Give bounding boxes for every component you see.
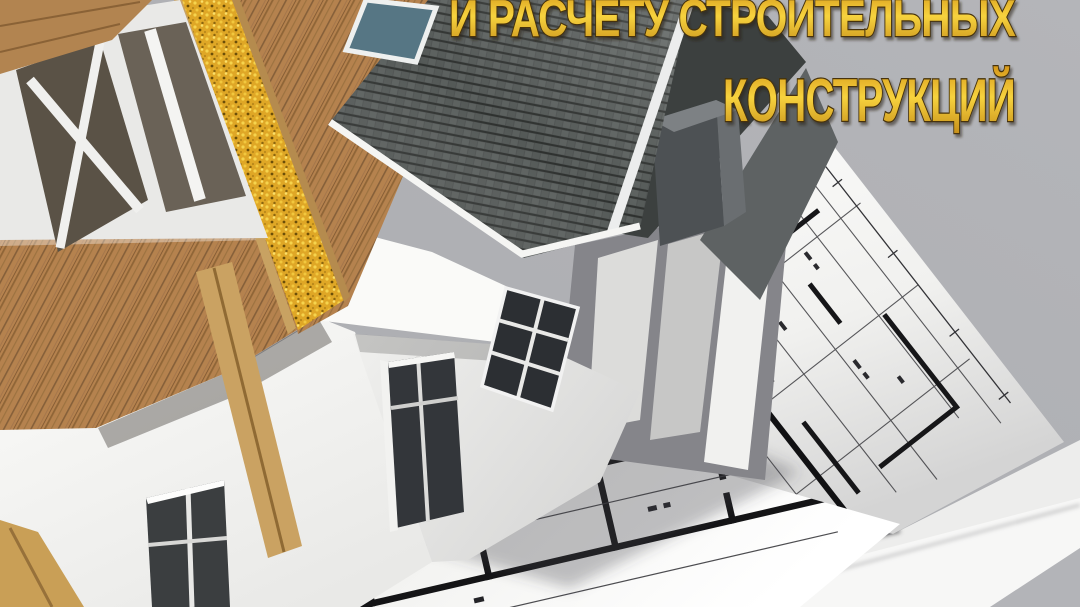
door-opening — [380, 352, 464, 532]
cover-scene: И РАСЧЕТУ СТРОИТЕЛЬНЫХ КОНСТРУКЦИЙ — [0, 0, 1080, 607]
title-line-2: КОНСТРУКЦИЙ — [723, 67, 1015, 134]
title-line-1: И РАСЧЕТУ СТРОИТЕЛЬНЫХ — [449, 0, 1016, 48]
window-opening — [146, 480, 230, 607]
book-cover: И РАСЧЕТУ СТРОИТЕЛЬНЫХ КОНСТРУКЦИЙ — [0, 0, 1080, 607]
